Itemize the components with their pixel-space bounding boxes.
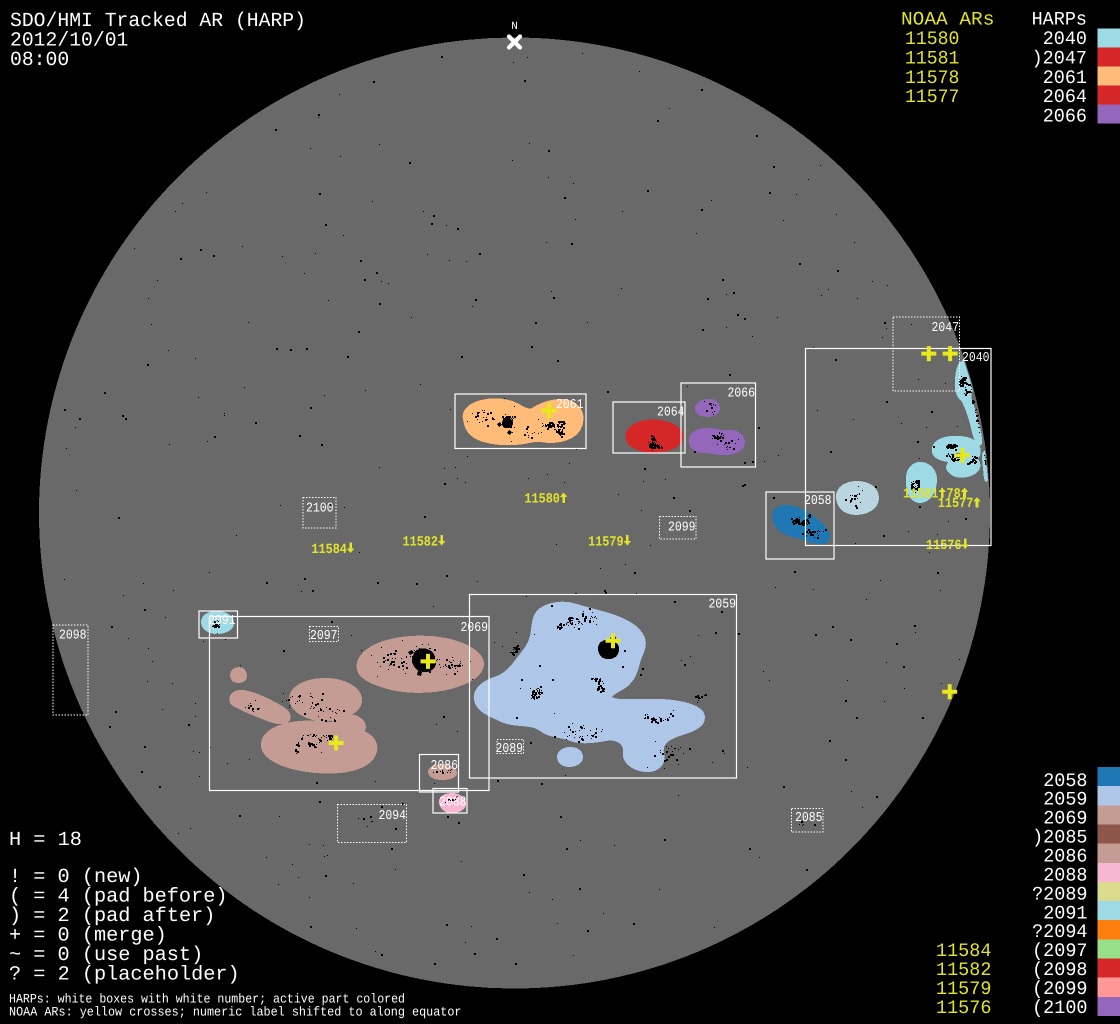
svg-text:11581: 11581 (903, 487, 939, 503)
svg-text:2094: 2094 (379, 809, 407, 824)
svg-text:11582: 11582 (403, 535, 439, 551)
svg-text:2061: 2061 (556, 398, 584, 413)
svg-text:11579: 11579 (588, 535, 624, 551)
svg-text:2098: 2098 (59, 629, 87, 644)
svg-text:2091: 2091 (208, 614, 236, 629)
svg-text:08:00: 08:00 (10, 49, 69, 72)
svg-text:2069: 2069 (461, 621, 489, 636)
svg-text:2064: 2064 (657, 406, 685, 421)
svg-text:11584: 11584 (311, 542, 347, 558)
svg-text:2040: 2040 (962, 351, 990, 366)
svg-text:2089: 2089 (496, 742, 524, 757)
svg-text:78: 78 (947, 487, 961, 503)
svg-text:NOAA ARs: yellow crosses; nume: NOAA ARs: yellow crosses; numeric label … (9, 1005, 462, 1020)
svg-text:11576: 11576 (936, 997, 991, 1019)
svg-text:N: N (511, 21, 518, 33)
svg-text:2066: 2066 (728, 387, 756, 402)
svg-text:11580: 11580 (524, 492, 560, 508)
svg-text:2099: 2099 (668, 521, 696, 536)
svg-text:2097: 2097 (310, 629, 338, 644)
svg-text:? = 2 (placeholder): ? = 2 (placeholder) (9, 964, 240, 987)
svg-text:11576: 11576 (926, 538, 962, 554)
svg-text:2100: 2100 (306, 502, 334, 517)
svg-text:2085: 2085 (795, 811, 823, 826)
svg-text:(2100: (2100 (1032, 997, 1087, 1019)
svg-text:2066: 2066 (1043, 106, 1087, 128)
svg-text:2047: 2047 (932, 321, 960, 336)
svg-text:2059: 2059 (709, 598, 737, 613)
svg-text:H = 18: H = 18 (9, 829, 82, 852)
svg-text:2058: 2058 (804, 494, 832, 509)
svg-text:2088: 2088 (439, 796, 467, 811)
svg-text:2086: 2086 (431, 759, 459, 774)
svg-text:11577: 11577 (905, 86, 959, 108)
